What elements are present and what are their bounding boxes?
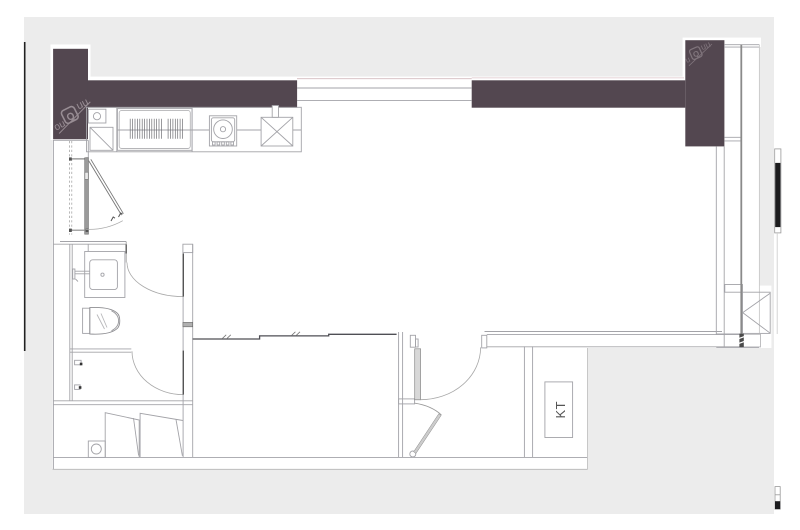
svg-text:KT: KT [553,401,568,419]
